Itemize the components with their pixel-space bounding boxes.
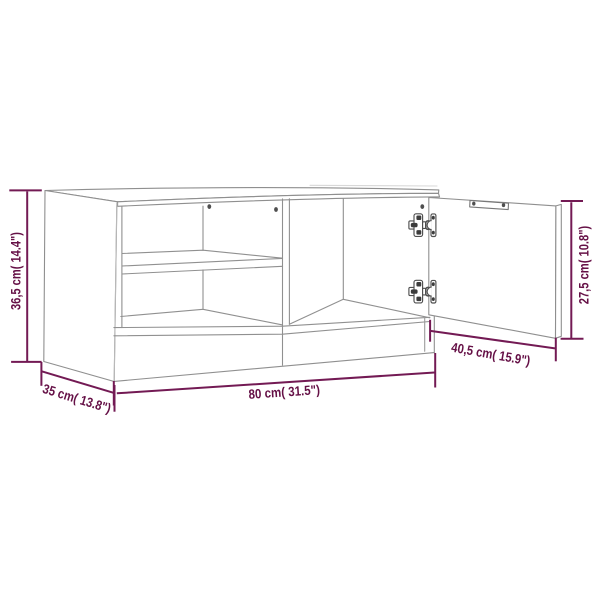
svg-text:27,5 cm( 10.8"): 27,5 cm( 10.8") [577, 226, 592, 305]
svg-text:36,5 cm( 14.4"): 36,5 cm( 14.4") [8, 232, 23, 310]
